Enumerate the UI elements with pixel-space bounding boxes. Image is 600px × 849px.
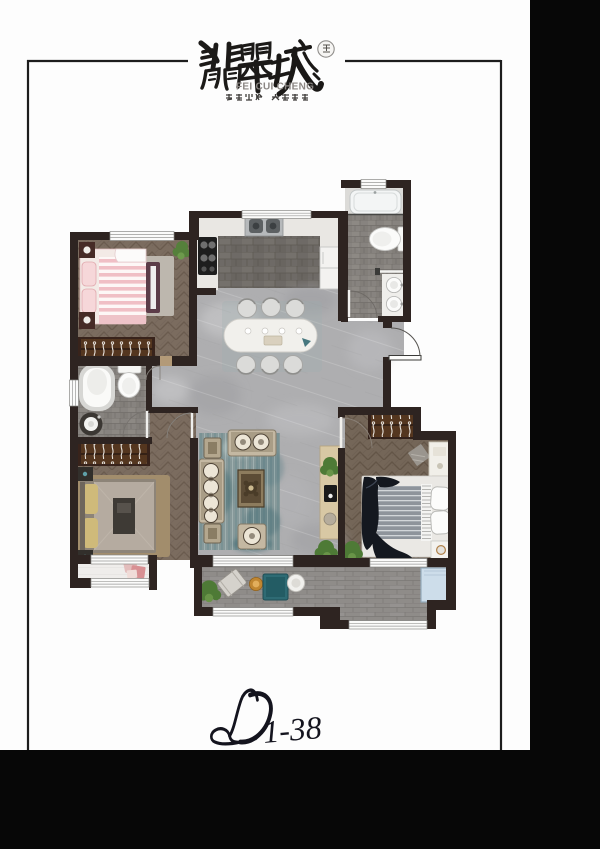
svg-text:1-38: 1-38 xyxy=(261,709,323,750)
svg-text:FEI CUI CHENG: FEI CUI CHENG xyxy=(236,82,315,93)
